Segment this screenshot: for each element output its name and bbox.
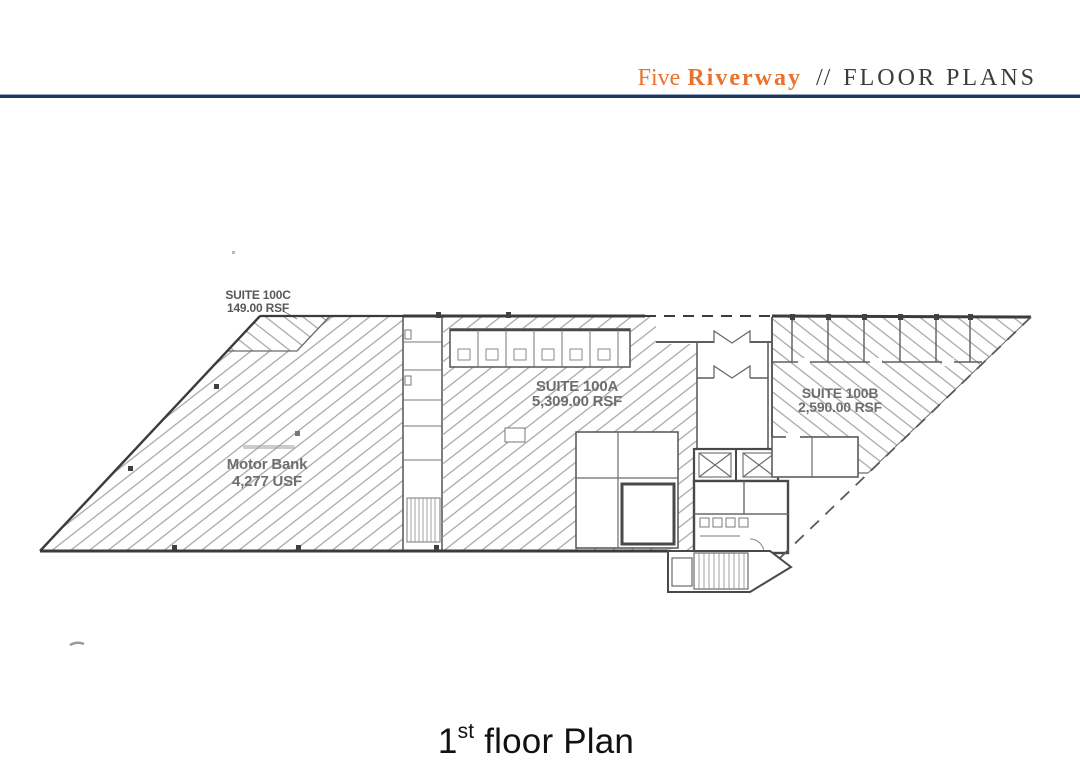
suite-100b-area: 2,590.00 RSF (798, 399, 883, 415)
double-door-icon (714, 331, 750, 343)
caption-number: 1 (438, 722, 458, 761)
double-door-icon (714, 366, 750, 378)
suite-100a-region (442, 316, 697, 551)
caption-text: floor Plan (474, 722, 634, 761)
suite-100a-area: 5,309.00 RSF (532, 393, 622, 410)
suite-100c-area: 149.00 RSF (227, 301, 289, 315)
small-closet (505, 428, 525, 442)
elevator-bank-icon (694, 449, 778, 481)
plan-caption: 1st floor Plan (438, 722, 634, 762)
floor-plan-drawing: SUITE 100C 149.00 RSF SUITE 100A 5,309.0… (0, 0, 1080, 774)
motor-bank-label: Motor Bank (227, 456, 308, 473)
caption-ordinal: st (458, 720, 475, 743)
motor-bank-area: 4,277 USF (232, 473, 302, 490)
interior-rooms (576, 432, 678, 548)
core-corridor-strip (403, 316, 442, 551)
workstation-band (450, 329, 630, 367)
entry-stair-protrusion (668, 551, 791, 592)
suite-100b-lower-rooms (772, 433, 858, 477)
motor-bank-region (40, 316, 403, 551)
page: FiveRiverway//FLOOR PLANS (0, 0, 1080, 774)
suite-100c-label: SUITE 100C (225, 288, 291, 302)
restroom-core (694, 481, 788, 553)
